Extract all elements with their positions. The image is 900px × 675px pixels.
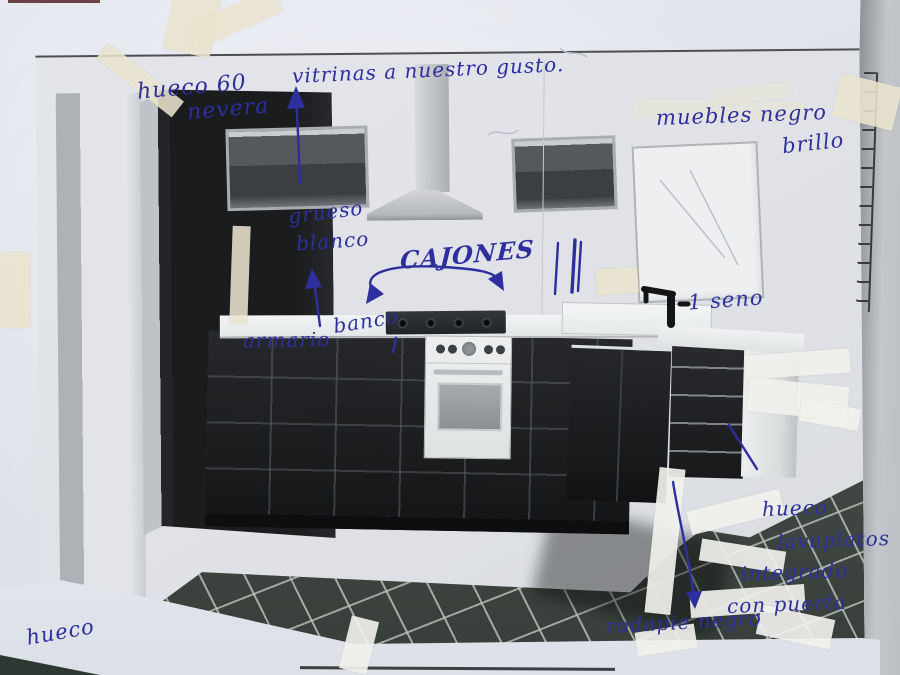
photo-of-annotated-kitchen-plan: hueco 60 nevera vitrinas a nuestro gusto…: [0, 0, 900, 675]
oven-window: [437, 382, 503, 431]
annotation-armario: armario: [243, 327, 331, 353]
edge-mark: [8, 0, 100, 3]
sink-cabinet: [566, 345, 672, 504]
annotation-lavaplatos-2: lavaplatos: [777, 526, 891, 554]
tape-piece: [595, 267, 639, 296]
annotation-lavaplatos-1: hueco: [762, 495, 829, 521]
annotation-blanco: blanco: [295, 226, 370, 255]
extractor-hood-chimney: [415, 64, 450, 192]
extractor-hood-canopy: [367, 190, 483, 221]
tape-piece: [0, 252, 30, 328]
wall-panel: [632, 141, 765, 303]
gas-hob: [386, 311, 506, 335]
oven: [424, 335, 512, 459]
drawer-unit: [669, 340, 747, 479]
wall-cabinet-right: [511, 135, 618, 213]
tape-piece: [229, 226, 250, 325]
annotation-lavaplatos-3: integrado: [741, 558, 849, 586]
oven-handle: [434, 369, 503, 375]
